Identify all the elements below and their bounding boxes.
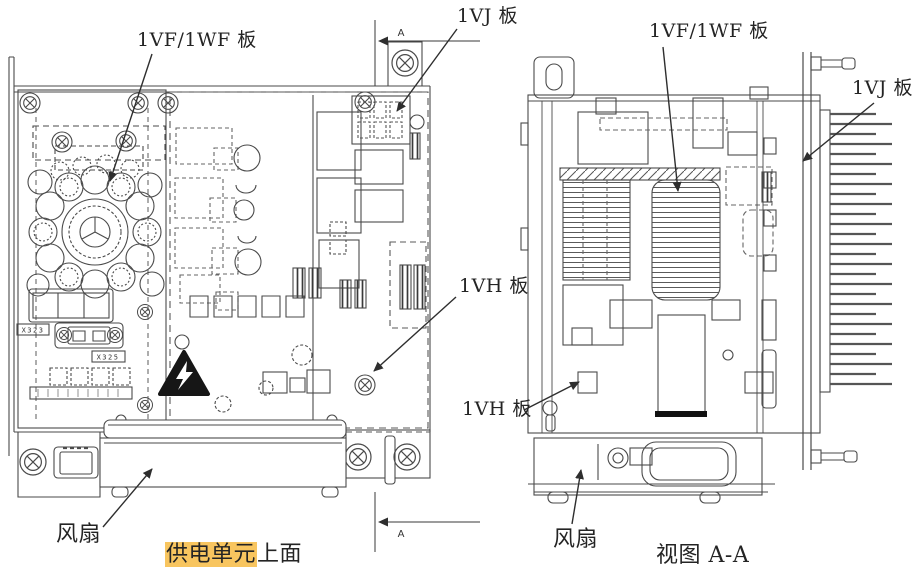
section-letter-top: A — [398, 28, 405, 39]
caption-plain-part: 上面 — [257, 542, 302, 567]
leader-1vf1wf-left — [110, 54, 152, 181]
label-board-1vj-left-view: 1VJ 板 — [457, 6, 518, 27]
label-fan-left-view: 风扇 — [56, 523, 101, 547]
fan-unit-left-view — [100, 415, 430, 497]
label-board-1vh-right-view: 1VH 板 — [462, 399, 532, 420]
label-board-1vf1wf-left: 1VF/1WF 板 — [137, 30, 257, 51]
screenshot-root: X323 X325 — [0, 0, 914, 582]
high-voltage-warning-icon — [160, 352, 208, 394]
bolt-bottom-right — [811, 450, 857, 463]
x325-mark: X325 — [97, 354, 120, 362]
caption-highlighted-part: 供电单元 — [165, 542, 257, 567]
leader-1vj-right-view — [803, 103, 874, 161]
section-marker-bottom: A — [375, 492, 480, 552]
label-board-1vj-right-view: 1VJ 板 — [852, 78, 913, 99]
leader-1vh-right-view — [524, 382, 579, 410]
caption-view-aa: 视图 A-A — [656, 544, 749, 568]
section-marker-top: A — [375, 20, 480, 86]
section-letter-bottom: A — [398, 529, 405, 540]
label-board-1vf1wf-right: 1VF/1WF 板 — [649, 21, 769, 42]
bolt-top-right — [811, 57, 855, 70]
x323-mark: X323 — [22, 327, 45, 335]
label-board-1vh-left-view: 1VH 板 — [459, 276, 529, 297]
capacitor-cluster — [27, 155, 164, 298]
label-fan-right-view: 风扇 — [553, 528, 598, 552]
technical-drawing: X323 X325 — [0, 0, 914, 582]
section-view-a-a — [521, 52, 892, 503]
heat-sink — [820, 110, 892, 392]
caption-power-unit-top: 供电单元上面 — [165, 543, 302, 567]
fan-unit-right-view — [528, 438, 775, 503]
power-unit-top-view: X323 X325 — [9, 42, 430, 497]
